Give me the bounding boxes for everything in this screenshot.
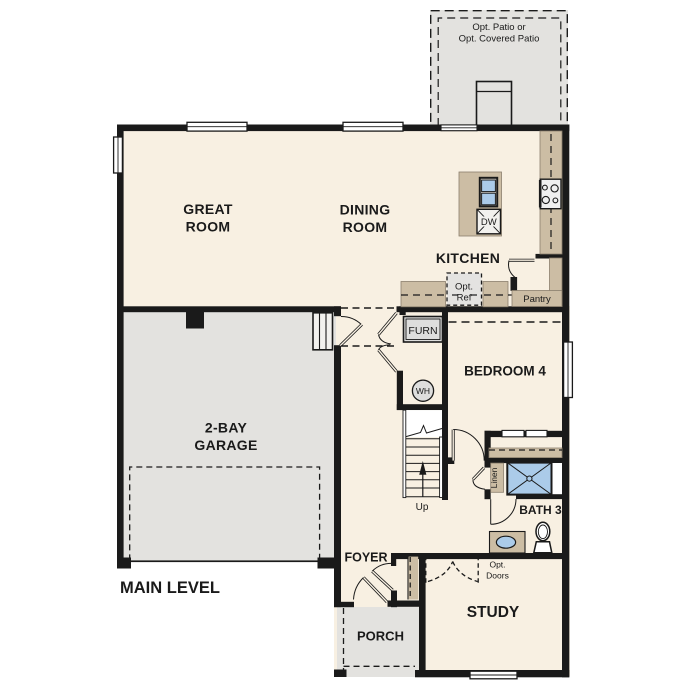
svg-text:FOYER: FOYER: [344, 551, 387, 565]
svg-text:Linen: Linen: [489, 467, 499, 488]
svg-text:GREAT: GREAT: [183, 201, 233, 217]
svg-text:Opt. Patio or: Opt. Patio or: [472, 22, 525, 33]
svg-text:2-BAY: 2-BAY: [205, 420, 248, 436]
svg-text:Opt. Covered Patio: Opt. Covered Patio: [459, 34, 540, 45]
svg-text:Doors: Doors: [486, 571, 509, 581]
svg-text:Up: Up: [416, 502, 429, 513]
svg-text:Opt.: Opt.: [455, 282, 473, 293]
svg-text:Opt.: Opt.: [489, 560, 505, 570]
svg-text:Ref: Ref: [457, 293, 472, 304]
svg-text:BEDROOM 4: BEDROOM 4: [464, 364, 546, 379]
svg-text:DW: DW: [481, 217, 497, 228]
svg-text:STUDY: STUDY: [467, 604, 520, 621]
svg-text:Pantry: Pantry: [523, 294, 551, 305]
svg-text:ROOM: ROOM: [186, 219, 231, 235]
svg-text:FURN: FURN: [408, 325, 437, 337]
svg-text:PORCH: PORCH: [357, 629, 404, 644]
svg-text:BATH 3: BATH 3: [519, 503, 562, 517]
svg-text:ROOM: ROOM: [343, 219, 388, 235]
svg-text:DINING: DINING: [340, 202, 391, 218]
svg-text:WH: WH: [416, 386, 430, 396]
svg-text:KITCHEN: KITCHEN: [436, 250, 500, 266]
svg-text:MAIN LEVEL: MAIN LEVEL: [120, 579, 220, 597]
svg-text:GARAGE: GARAGE: [194, 437, 257, 453]
